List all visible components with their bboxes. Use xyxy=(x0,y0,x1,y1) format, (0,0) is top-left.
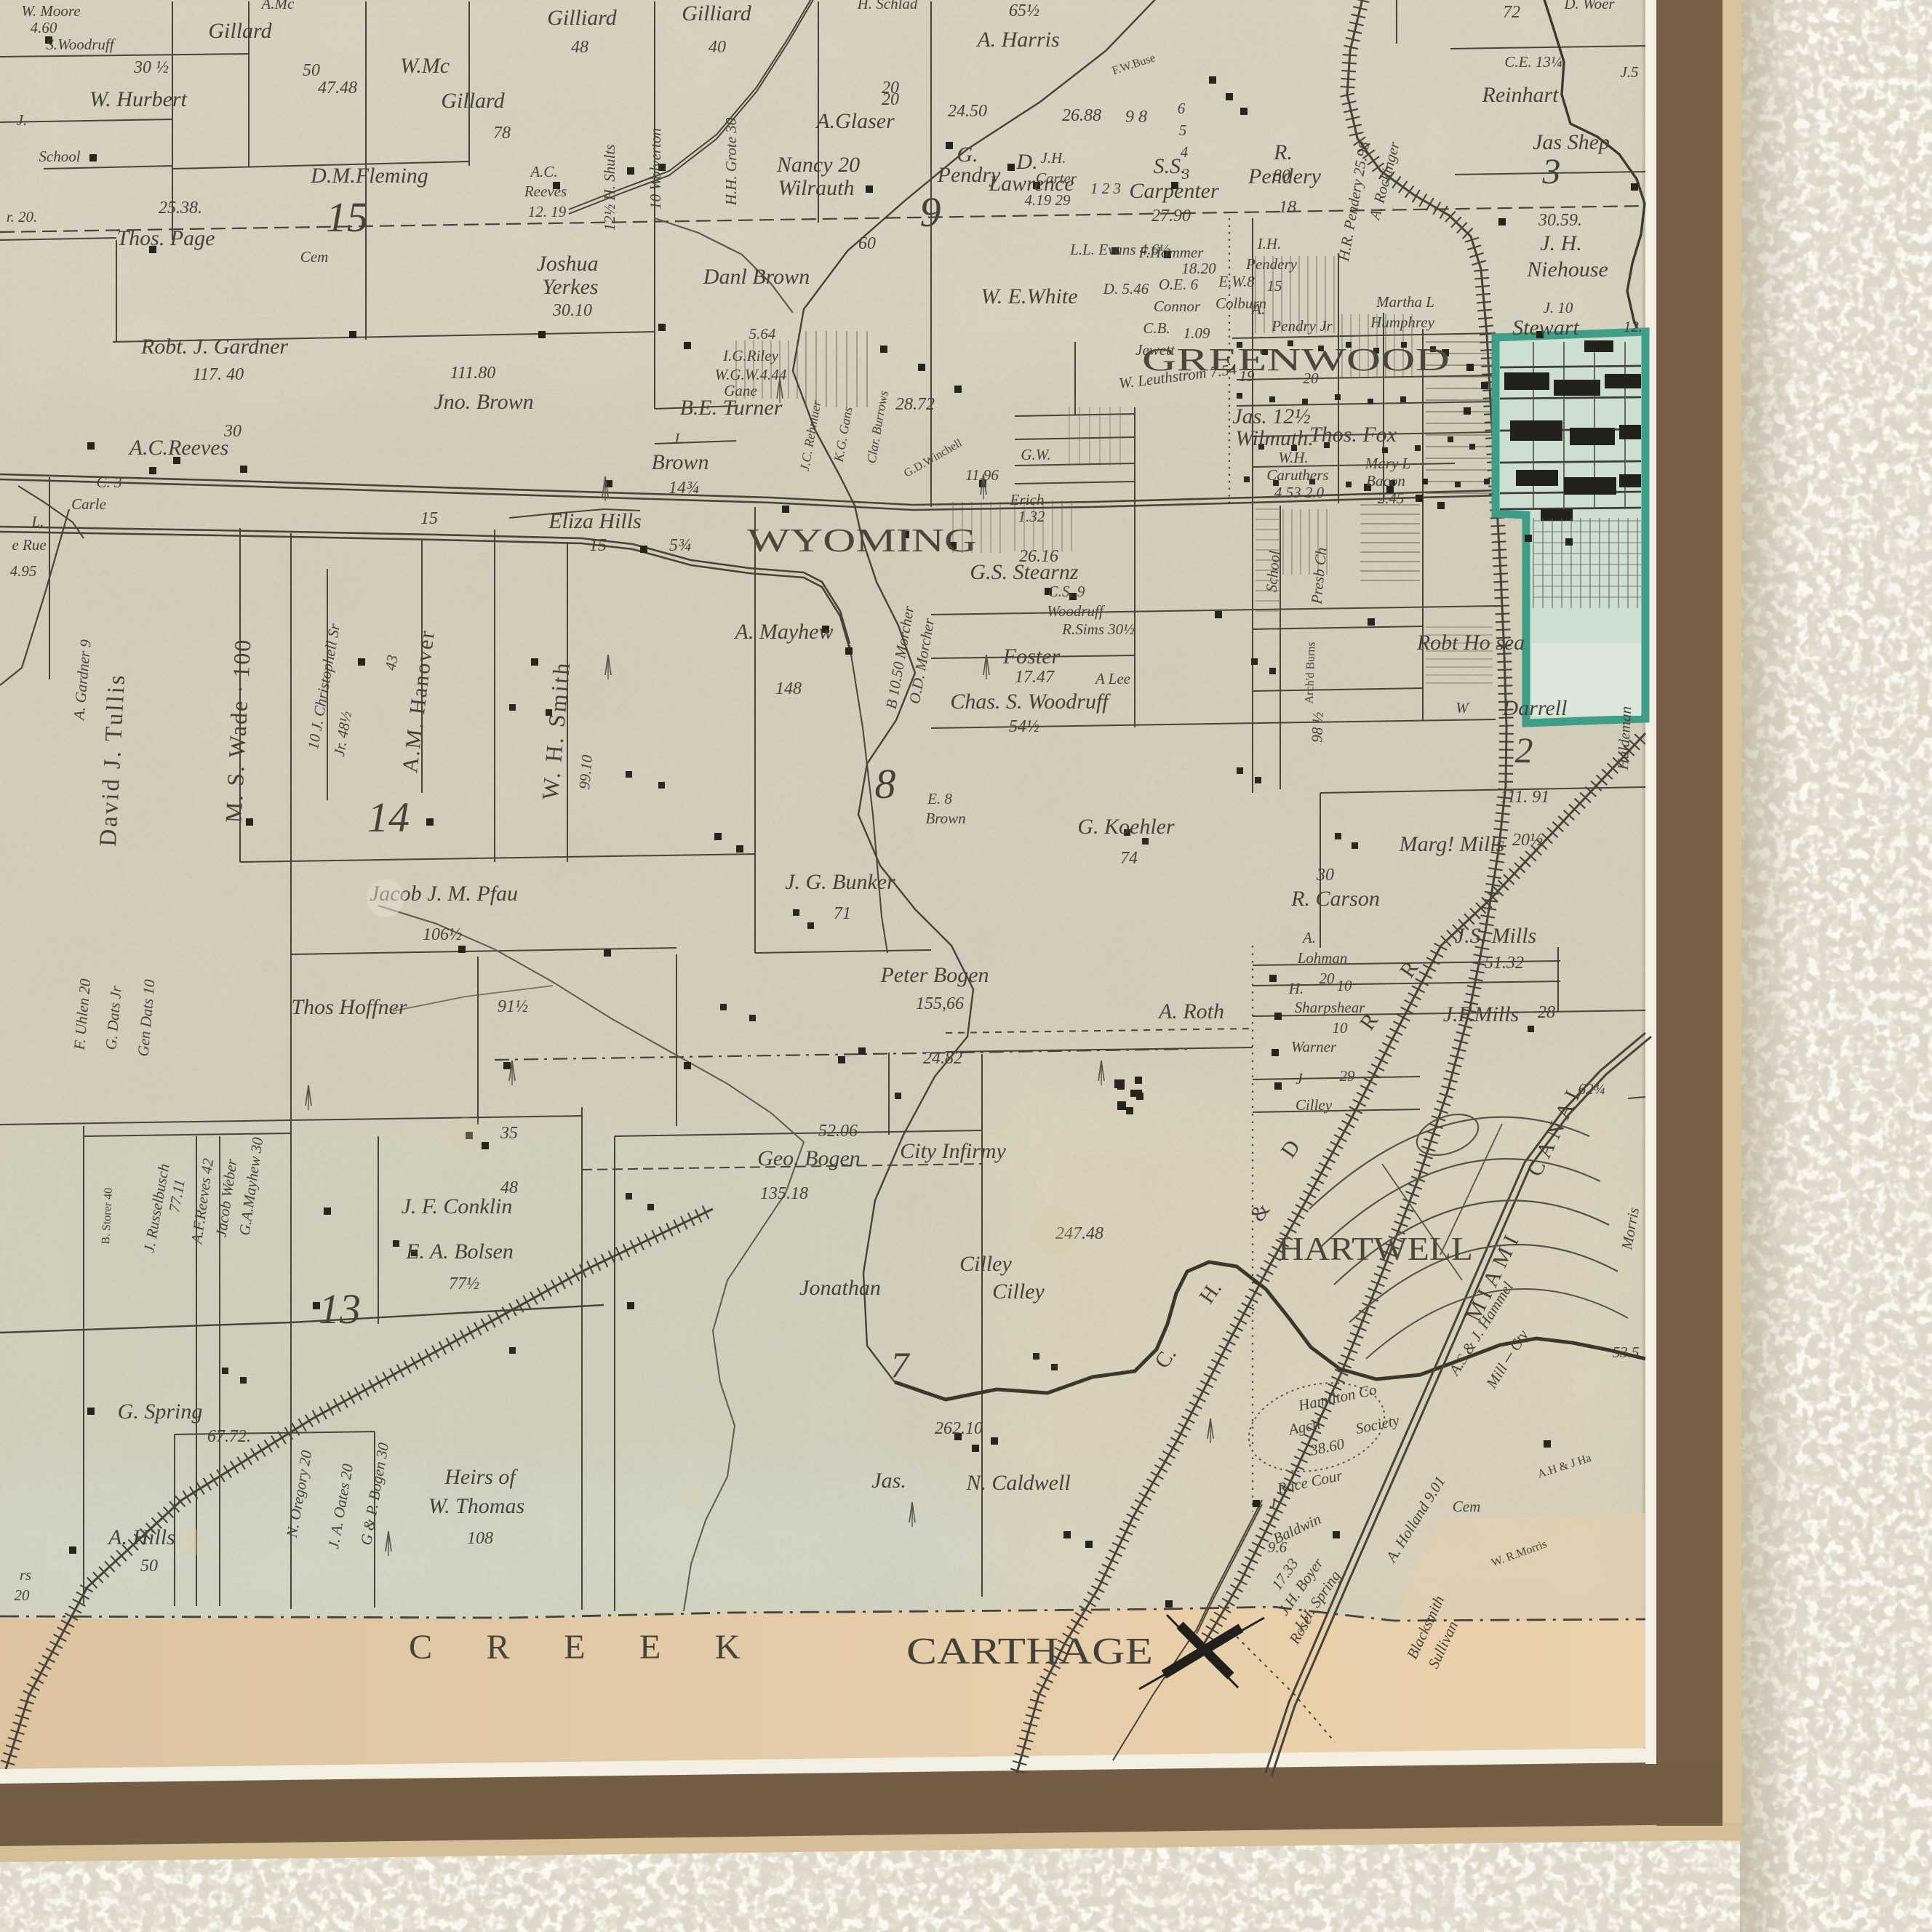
svg-text:9: 9 xyxy=(920,188,941,236)
svg-text:D. Woer: D. Woer xyxy=(1563,0,1615,12)
svg-text:Gilliard: Gilliard xyxy=(547,6,618,30)
svg-text:9.6: 9.6 xyxy=(1268,1538,1288,1556)
svg-text:Colburn: Colburn xyxy=(1216,295,1266,312)
svg-text:W.H.: W.H. xyxy=(1278,449,1308,466)
svg-text:Sharpshear: Sharpshear xyxy=(1295,999,1366,1016)
svg-text:D.: D. xyxy=(1015,150,1037,174)
svg-text:W. E.White: W. E.White xyxy=(981,284,1077,308)
svg-text:J.S. Mills: J.S. Mills xyxy=(1455,924,1537,948)
svg-text:5¾: 5¾ xyxy=(669,536,691,555)
svg-text:Jewett: Jewett xyxy=(1135,341,1175,359)
svg-text:J.5: J.5 xyxy=(1620,63,1638,81)
svg-text:W: W xyxy=(1456,699,1470,716)
svg-text:13: 13 xyxy=(319,1285,361,1333)
svg-text:72: 72 xyxy=(1503,3,1520,22)
svg-text:27.90: 27.90 xyxy=(1151,207,1191,225)
svg-text:Reeves: Reeves xyxy=(524,183,567,200)
svg-text:Robt. J. Gardner: Robt. J. Gardner xyxy=(140,335,289,359)
svg-text:A.Mc: A.Mc xyxy=(260,0,295,12)
svg-text:5.64: 5.64 xyxy=(749,325,776,343)
svg-text:H. Schlad: H. Schlad xyxy=(857,0,918,12)
svg-text:Caruthers: Caruthers xyxy=(1266,466,1328,484)
svg-text:98 ½: 98 ½ xyxy=(1308,711,1326,743)
svg-text:50: 50 xyxy=(303,61,320,80)
svg-text:Cem: Cem xyxy=(300,248,329,266)
svg-text:Thos Hoffner: Thos Hoffner xyxy=(291,995,407,1019)
svg-text:Heirs of: Heirs of xyxy=(444,1465,518,1489)
svg-text:8: 8 xyxy=(875,760,896,807)
svg-text:Pendery: Pendery xyxy=(1248,164,1322,188)
svg-text:G. Spring: G. Spring xyxy=(118,1400,203,1424)
svg-text:2.45: 2.45 xyxy=(1378,490,1405,507)
svg-text:A.: A. xyxy=(1301,929,1316,946)
svg-text:108: 108 xyxy=(467,1529,493,1548)
svg-text:C.B.: C.B. xyxy=(1143,319,1170,337)
svg-text:117. 40: 117. 40 xyxy=(193,365,244,384)
svg-text:Erich: Erich xyxy=(1010,491,1045,508)
svg-text:4.19 29: 4.19 29 xyxy=(1025,191,1071,209)
svg-text:D. 5.46: D. 5.46 xyxy=(1103,280,1149,298)
svg-text:15: 15 xyxy=(420,509,438,528)
svg-text:99.10: 99.10 xyxy=(575,754,596,790)
svg-text:111. 91: 111. 91 xyxy=(1500,788,1549,807)
svg-text:A. Mayhew: A. Mayhew xyxy=(734,620,834,644)
svg-text:67.72.: 67.72. xyxy=(207,1427,251,1446)
svg-text:155,66: 155,66 xyxy=(916,994,964,1013)
svg-text:H.: H. xyxy=(1288,980,1304,997)
svg-text:C.S. 9: C.S. 9 xyxy=(1048,583,1085,600)
svg-text:30 ½: 30 ½ xyxy=(133,58,169,77)
svg-text:65½: 65½ xyxy=(1009,1,1039,20)
svg-text:J.H.: J.H. xyxy=(1041,149,1066,167)
svg-text:40: 40 xyxy=(708,38,726,57)
svg-text:WYOMING: WYOMING xyxy=(747,522,977,559)
svg-text:R.Sims 30½: R.Sims 30½ xyxy=(1061,620,1135,638)
svg-text:10: 10 xyxy=(1337,977,1353,994)
svg-text:Jno. Brown: Jno. Brown xyxy=(434,390,533,414)
svg-text:W.G.W.4.44: W.G.W.4.44 xyxy=(715,366,787,383)
svg-text:Mary L: Mary L xyxy=(1365,455,1410,472)
svg-text:A Lee: A Lee xyxy=(1094,670,1130,687)
svg-text:Arch'd Burns: Arch'd Burns xyxy=(1304,642,1318,704)
svg-text:G. Koehler: G. Koehler xyxy=(1077,815,1175,839)
svg-text:10: 10 xyxy=(1333,1019,1349,1037)
svg-text:J.: J. xyxy=(17,111,28,129)
svg-text:4.53 2.0: 4.53 2.0 xyxy=(1274,484,1325,501)
svg-text:Thos. Fox: Thos. Fox xyxy=(1309,423,1397,447)
svg-text:Pendery: Pendery xyxy=(1245,255,1298,273)
svg-text:Cilley: Cilley xyxy=(959,1252,1012,1276)
svg-text:30: 30 xyxy=(223,422,242,441)
svg-text:E. A. Bolsen: E. A. Bolsen xyxy=(405,1240,514,1264)
svg-text:Gillard: Gillard xyxy=(441,89,505,113)
svg-text:W. Moore: W. Moore xyxy=(21,2,80,20)
svg-text:50: 50 xyxy=(140,1557,158,1576)
svg-text:H.H. Grote 30: H.H. Grote 30 xyxy=(722,117,740,206)
svg-text:18: 18 xyxy=(1279,198,1296,217)
svg-text:30.59.: 30.59. xyxy=(1538,211,1582,230)
svg-text:Warner: Warner xyxy=(1291,1038,1337,1055)
svg-text:15: 15 xyxy=(326,193,368,241)
svg-text:26.88: 26.88 xyxy=(1062,106,1101,125)
svg-text:Danl Brown: Danl Brown xyxy=(703,265,810,289)
svg-text:28: 28 xyxy=(1538,1003,1555,1022)
svg-text:43: 43 xyxy=(381,653,401,671)
svg-text:62¾: 62¾ xyxy=(1578,1080,1605,1098)
svg-text:20: 20 xyxy=(1304,370,1320,387)
svg-text:C. 3: C. 3 xyxy=(96,474,121,491)
svg-text:12. 19: 12. 19 xyxy=(528,203,567,220)
svg-text:G.W.: G.W. xyxy=(1021,446,1050,463)
svg-text:Joshua: Joshua xyxy=(537,252,599,276)
svg-text:r. 20.: r. 20. xyxy=(7,208,38,225)
svg-text:20: 20 xyxy=(1320,970,1336,987)
svg-text:Haldeman: Haldeman xyxy=(1614,706,1635,771)
svg-text:I.H.: I.H. xyxy=(1257,235,1282,252)
svg-text:W. Thomas: W. Thomas xyxy=(428,1494,524,1518)
svg-text:74: 74 xyxy=(1120,849,1138,868)
svg-text:20½: 20½ xyxy=(1512,831,1543,850)
svg-text:S.S.: S.S. xyxy=(1154,154,1186,178)
svg-text:Humphrey: Humphrey xyxy=(1370,314,1435,331)
svg-text:School: School xyxy=(39,148,80,165)
svg-text:Carle: Carle xyxy=(71,495,106,513)
svg-text:7: 7 xyxy=(891,1344,911,1385)
svg-text:Jonathan: Jonathan xyxy=(799,1276,881,1300)
svg-text:I.G.Riley: I.G.Riley xyxy=(722,347,778,364)
svg-text:Bacon: Bacon xyxy=(1366,472,1405,490)
svg-text:48: 48 xyxy=(571,38,588,57)
svg-text:9 8: 9 8 xyxy=(1125,108,1147,127)
svg-text:Woodruff: Woodruff xyxy=(1047,602,1106,620)
svg-text:15: 15 xyxy=(589,536,607,555)
svg-text:1.09: 1.09 xyxy=(1183,324,1210,342)
svg-text:Reinhart: Reinhart xyxy=(1482,83,1560,107)
svg-text:15: 15 xyxy=(1267,277,1282,295)
svg-text:77½: 77½ xyxy=(449,1274,479,1293)
svg-text:30: 30 xyxy=(1316,866,1334,885)
svg-text:Nancy 20: Nancy 20 xyxy=(776,153,860,177)
svg-text:Brown: Brown xyxy=(925,810,965,827)
svg-text:Foster: Foster xyxy=(1002,644,1061,668)
svg-text:Chas. S. Woodruff: Chas. S. Woodruff xyxy=(950,690,1111,714)
svg-text:E.W.8: E.W.8 xyxy=(1218,273,1255,290)
svg-text:24.82: 24.82 xyxy=(923,1049,962,1068)
svg-text:J. F. Conklin: J. F. Conklin xyxy=(402,1194,513,1218)
svg-text:91½: 91½ xyxy=(498,997,528,1016)
svg-text:30.10: 30.10 xyxy=(552,301,592,320)
svg-text:Jas. 12½: Jas. 12½ xyxy=(1232,404,1311,428)
svg-text:111.80: 111.80 xyxy=(450,364,495,383)
svg-text:Jas Shep: Jas Shep xyxy=(1533,130,1610,154)
svg-text:G.S. Stearnz: G.S. Stearnz xyxy=(970,560,1078,584)
svg-text:135.18: 135.18 xyxy=(760,1184,808,1203)
svg-text:Eliza Hills: Eliza Hills xyxy=(548,509,642,533)
svg-text:5: 5 xyxy=(1179,121,1187,139)
svg-text:25.38.: 25.38. xyxy=(159,199,202,217)
svg-text:rs: rs xyxy=(20,1566,31,1584)
svg-text:106½: 106½ xyxy=(423,925,462,944)
svg-text:Gilliard: Gilliard xyxy=(682,1,752,25)
svg-text:53.5: 53.5 xyxy=(1613,1344,1640,1361)
svg-text:B.E. Turner: B.E. Turner xyxy=(680,396,783,420)
svg-text:20: 20 xyxy=(15,1586,31,1604)
svg-text:Thos. Page: Thos. Page xyxy=(117,226,215,250)
svg-text:C.E. 13¼: C.E. 13¼ xyxy=(1504,53,1562,71)
svg-text:28.72: 28.72 xyxy=(895,395,935,414)
svg-text:19: 19 xyxy=(1240,367,1256,385)
svg-text:24.50: 24.50 xyxy=(948,102,987,121)
svg-text:35: 35 xyxy=(500,1124,518,1143)
svg-text:262.10: 262.10 xyxy=(935,1419,983,1438)
svg-text:City Infirmy: City Infirmy xyxy=(900,1139,1006,1163)
svg-text:J. H.: J. H. xyxy=(1540,231,1581,255)
svg-text:School: School xyxy=(1263,550,1284,593)
svg-text:J.: J. xyxy=(1269,1495,1280,1512)
svg-text:CARTHAGE: CARTHAGE xyxy=(906,1631,1153,1672)
svg-text:e Rue: e Rue xyxy=(12,536,46,554)
svg-text:Cilley: Cilley xyxy=(992,1280,1045,1304)
svg-text:1.32: 1.32 xyxy=(1018,508,1045,525)
svg-text:52.06: 52.06 xyxy=(818,1122,858,1141)
svg-text:A.Glaser: A.Glaser xyxy=(815,109,895,133)
svg-text:78: 78 xyxy=(493,124,511,143)
svg-text:11.96: 11.96 xyxy=(965,466,999,484)
svg-text:Jas.: Jas. xyxy=(871,1469,906,1493)
svg-text:J.F.Mills: J.F.Mills xyxy=(1443,1002,1519,1026)
svg-text:Carpenter: Carpenter xyxy=(1129,179,1219,203)
svg-text:10 Wolverton: 10 Wolverton xyxy=(647,128,664,209)
svg-text:51.32: 51.32 xyxy=(1485,954,1524,973)
svg-text:Pendry Jr: Pendry Jr xyxy=(1271,317,1333,335)
svg-text:4.60: 4.60 xyxy=(31,19,57,36)
svg-text:Peter Bogen: Peter Bogen xyxy=(879,963,989,987)
svg-text:Lohman: Lohman xyxy=(1297,949,1348,967)
svg-text:Stewart: Stewart xyxy=(1512,316,1579,340)
svg-text:Carter: Carter xyxy=(1036,169,1077,187)
svg-text:W.Mc: W.Mc xyxy=(400,54,450,78)
svg-text:4.95: 4.95 xyxy=(10,562,37,580)
svg-text:A. Roth: A. Roth xyxy=(1157,999,1224,1023)
svg-text:6: 6 xyxy=(1178,100,1186,117)
svg-text:A. Hills: A. Hills xyxy=(107,1525,175,1549)
svg-text:47.48: 47.48 xyxy=(318,79,357,97)
svg-text:E. 8: E. 8 xyxy=(927,790,952,807)
svg-text:A.C.: A.C. xyxy=(529,163,557,180)
svg-text:3: 3 xyxy=(1542,151,1561,191)
svg-text:18.20: 18.20 xyxy=(1181,260,1216,277)
svg-text:148: 148 xyxy=(775,679,802,698)
svg-text:Marg! Mills: Marg! Mills xyxy=(1399,832,1505,856)
svg-text:L.: L. xyxy=(31,513,44,530)
svg-text:Robt Ho sea: Robt Ho sea xyxy=(1416,631,1525,655)
svg-text:Connor: Connor xyxy=(1154,298,1201,315)
svg-text:O.E. 6: O.E. 6 xyxy=(1159,276,1199,293)
svg-text:20: 20 xyxy=(882,79,899,97)
svg-text:Martha L: Martha L xyxy=(1376,293,1434,311)
svg-text:54½: 54½ xyxy=(1009,717,1039,736)
svg-text:Geo. Bogen: Geo. Bogen xyxy=(757,1146,861,1170)
svg-text:14: 14 xyxy=(367,794,410,841)
svg-text:Cem: Cem xyxy=(1453,1498,1481,1515)
svg-text:14¾: 14¾ xyxy=(668,479,699,498)
svg-text:12.: 12. xyxy=(1624,318,1642,335)
svg-text:Brown: Brown xyxy=(652,450,709,474)
svg-text:R. Carson: R. Carson xyxy=(1290,887,1380,911)
svg-text:Cilley: Cilley xyxy=(1296,1096,1333,1114)
svg-text:J. 10: J. 10 xyxy=(1544,299,1573,316)
svg-text:D.M.Fleming: D.M.Fleming xyxy=(310,164,428,188)
svg-text:J. G. Bunker: J. G. Bunker xyxy=(785,870,895,894)
svg-text:60: 60 xyxy=(858,234,876,253)
svg-text:Darrell: Darrell xyxy=(1502,696,1568,720)
svg-text:71: 71 xyxy=(834,904,851,923)
svg-text:W. Hurbert: W. Hurbert xyxy=(89,87,188,111)
svg-text:Wilrauth: Wilrauth xyxy=(778,176,854,200)
svg-text:R.: R. xyxy=(1273,140,1293,164)
svg-text:2: 2 xyxy=(1515,730,1533,770)
svg-text:1 2 3: 1 2 3 xyxy=(1090,180,1121,197)
svg-text:17.47: 17.47 xyxy=(1015,668,1055,687)
svg-text:29: 29 xyxy=(1340,1067,1356,1085)
svg-text:CREEK: CREEK xyxy=(409,1628,794,1666)
svg-text:Gillard: Gillard xyxy=(208,19,272,43)
svg-text:A.C.Reeves: A.C.Reeves xyxy=(128,436,229,460)
svg-text:F.Hammer: F.Hammer xyxy=(1138,244,1205,261)
svg-text:Niehouse: Niehouse xyxy=(1526,258,1608,282)
svg-text:N. Caldwell: N. Caldwell xyxy=(965,1471,1070,1495)
svg-text:Yerkes: Yerkes xyxy=(542,275,598,299)
svg-text:12½ H. Shults: 12½ H. Shults xyxy=(601,144,618,231)
svg-text:J.: J. xyxy=(673,430,684,447)
svg-text:S.Woodruff: S.Woodruff xyxy=(46,36,116,53)
svg-text:HARTWELL: HARTWELL xyxy=(1278,1230,1473,1267)
svg-text:A. Harris: A. Harris xyxy=(975,28,1059,52)
svg-text:Wilmuth.: Wilmuth. xyxy=(1235,426,1314,450)
